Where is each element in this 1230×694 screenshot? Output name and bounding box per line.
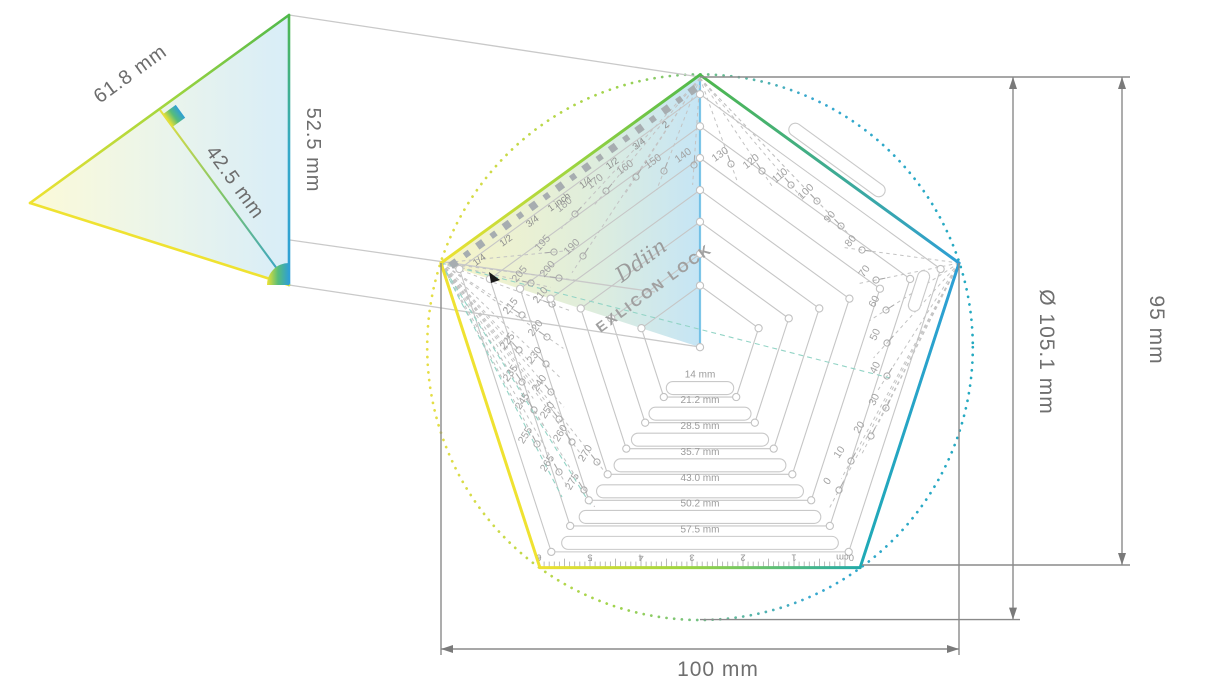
width-dimension-label: 100 mm [677,658,759,681]
cm-label: 0cm [836,552,854,563]
ring-vertex-hole [751,419,758,426]
pen-slot [631,433,768,446]
dimension-arrow [1118,77,1126,89]
ring-vertex-hole [696,154,703,161]
ring-vertex-hole [816,305,823,312]
ring-vertex-hole [623,445,630,452]
ring-vertex-hole [604,471,611,478]
center-hole [696,344,703,351]
dimension-arrow [947,645,959,653]
detail-triangle: 61.8 mm42.5 mm52.5 mm [30,15,324,285]
ring-vertex-hole [696,218,703,225]
ring-vertex-hole [696,282,703,289]
ring-vertex-hole [785,315,792,322]
ring-vertex-hole [906,275,913,282]
pen-slot [614,459,786,472]
position-marker-stem [545,252,551,253]
ring-vertex-hole [846,295,853,302]
ring-size-label: 50.2 mm [681,498,720,509]
height-dimension-label: 95 mm [1145,295,1168,364]
ring-vertex-hole [585,497,592,504]
cm-label: 3 [689,552,694,563]
ring-vertex-hole [577,305,584,312]
dimension-arrow [1009,77,1017,89]
cm-label: 5 [587,552,592,563]
ring-vertex-hole [547,295,554,302]
ring-vertex-hole [770,445,777,452]
cm-label: 1 [791,552,796,563]
ring-vertex-hole [696,123,703,130]
ring-vertex-hole [567,522,574,529]
ring-vertex-hole [456,265,463,272]
ring-vertex-hole [808,497,815,504]
ring-vertex-hole [755,325,762,332]
pen-slot [562,536,839,549]
pen-slot [649,407,751,420]
ring-vertex-hole [826,522,833,529]
ring-size-label: 21.2 mm [681,395,720,406]
projection-line [289,15,700,77]
pen-slot [597,485,804,498]
cm-label: 4 [638,552,643,563]
ring-vertex-hole [638,325,645,332]
cm-label: 2 [740,552,745,563]
ring-size-label: 43.0 mm [681,473,720,484]
ring-size-label: 57.5 mm [681,524,720,535]
pen-slot [579,510,821,523]
ring-vertex-hole [876,285,883,292]
ring-vertex-hole [937,265,944,272]
ring-vertex-hole [642,419,649,426]
ring-vertex-hole [696,91,703,98]
ring-vertex-hole [660,393,667,400]
ring-vertex-hole [548,548,555,555]
ring-vertex-hole [516,285,523,292]
ring-size-label: 14 mm [685,370,716,381]
ring-vertex-hole [789,471,796,478]
pen-slot [666,382,733,395]
dimension-arrow [1009,608,1017,620]
ring-vertex-hole [696,187,703,194]
dimension-arrow [1118,553,1126,565]
dimension-arrow [441,645,453,653]
side-length-label: 61.8 mm [90,40,172,108]
diagram-canvas: 1401501601701801901952002052102152202252… [0,0,1230,694]
diameter-dimension-label: Ø 105.1 mm [1035,289,1058,415]
ring-size-label: 35.7 mm [681,447,720,458]
ring-size-label: 28.5 mm [681,421,720,432]
ring-vertex-hole [733,393,740,400]
height-length-label: 52.5 mm [302,108,324,193]
exlicon-lock-spec-diagram: 1401501601701801901952002052102152202252… [0,0,1230,694]
